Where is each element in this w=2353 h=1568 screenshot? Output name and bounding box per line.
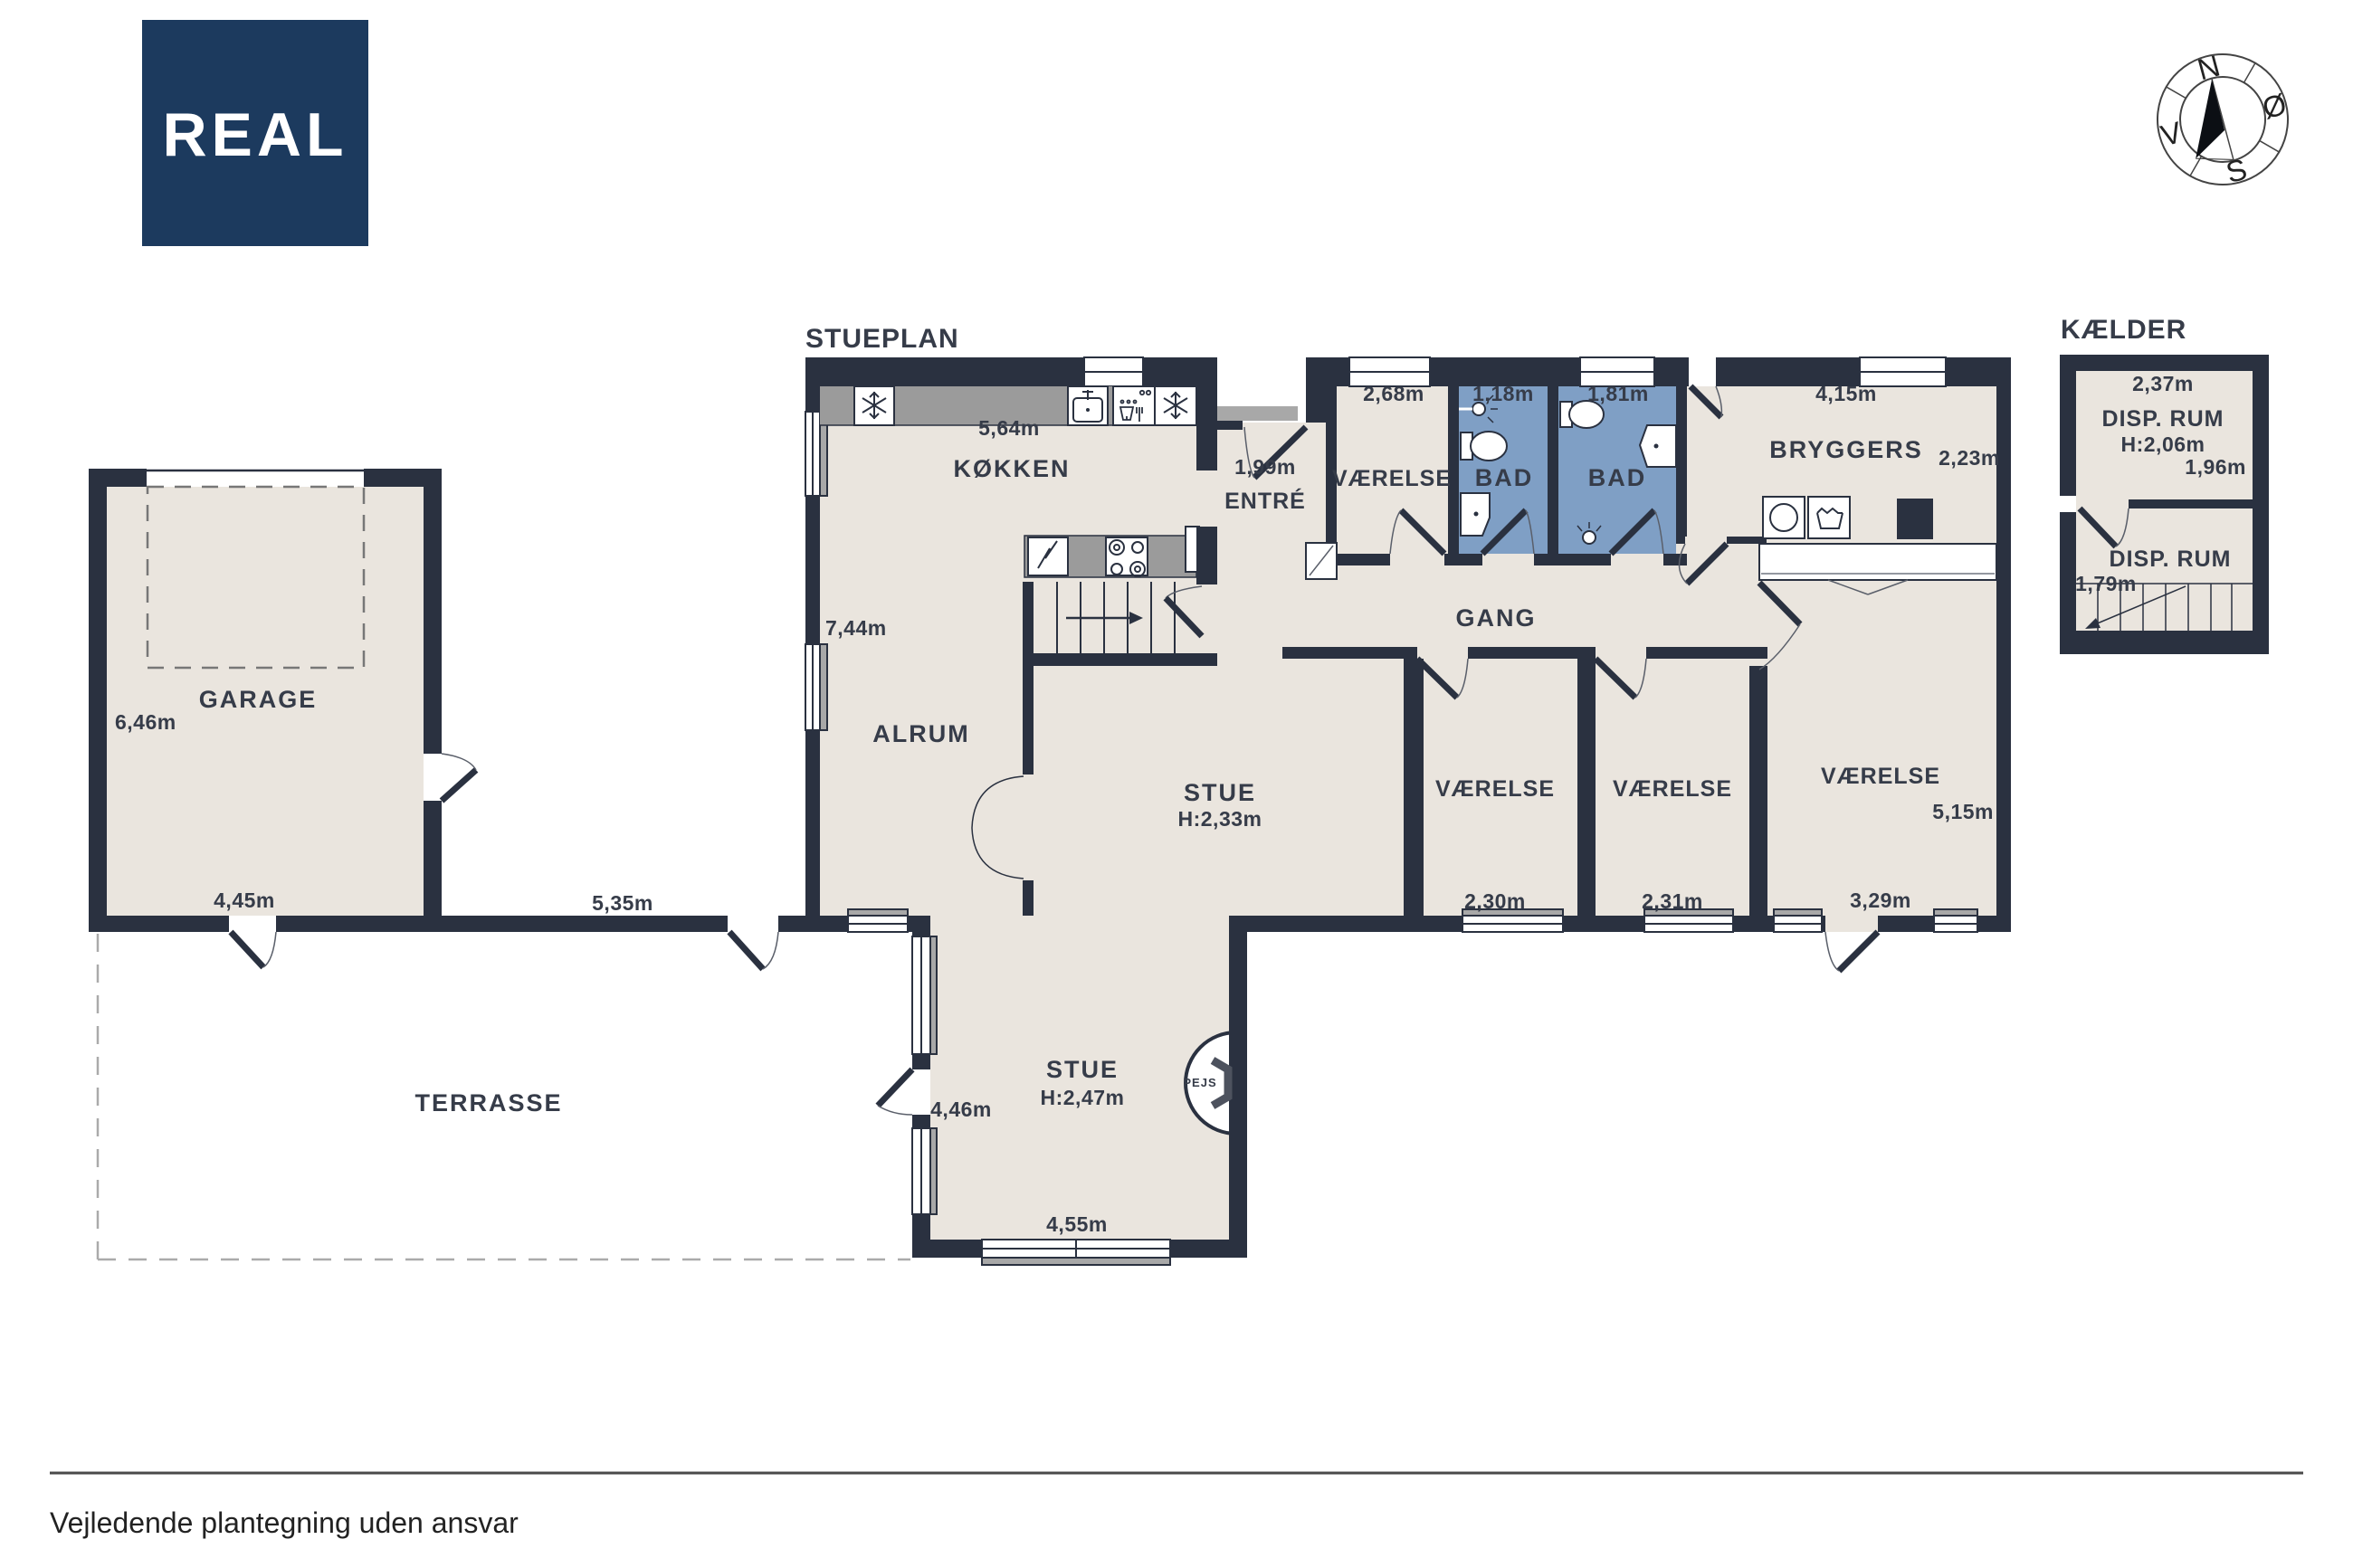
basement-plan-title: KÆLDER <box>2061 315 2186 345</box>
garage-depth: 6,46m <box>115 710 176 734</box>
entre-door-width: 1,99m <box>1234 455 1296 479</box>
stue-syd-label: STUE <box>1046 1056 1119 1083</box>
vaerelse3-label: VÆRELSE <box>1821 764 1940 789</box>
basement-rum1-width: 2,37m <box>2132 372 2194 395</box>
garage-side-door <box>424 754 476 801</box>
bryggers-depth: 2,23m <box>1939 446 2000 470</box>
garage-terrace-door <box>229 916 276 967</box>
connector-width: 5,35m <box>592 891 653 915</box>
garage-label: GARAGE <box>199 686 318 713</box>
vaerelse2-label: VÆRELSE <box>1613 776 1732 802</box>
bad1-label: BAD <box>1475 464 1534 491</box>
bad2-width: 1,81m <box>1587 382 1649 405</box>
koekken-height: 7,44m <box>825 616 887 640</box>
brand-logo: REAL <box>142 20 368 246</box>
basement-plan <box>2060 355 2269 654</box>
brand-logo-text: REAL <box>162 100 348 169</box>
stue-syd-width: 4,55m <box>1046 1212 1108 1236</box>
bad1-width: 1,18m <box>1472 382 1534 405</box>
bad2-label: BAD <box>1588 464 1647 491</box>
vaerelse3-width: 3,29m <box>1850 889 1911 912</box>
vaerelse2-width: 2,31m <box>1642 889 1703 913</box>
basement-rum1-label: DISP. RUM <box>2102 406 2224 432</box>
entre-label: ENTRÉ <box>1224 488 1306 514</box>
koekken-label: KØKKEN <box>953 455 1070 482</box>
floorplan-page: REAL N Ø S V STUEPLAN KÆLDER <box>0 0 2353 1568</box>
basement-rum1-ceiling: H:2,06m <box>2121 432 2205 456</box>
alrum-label: ALRUM <box>872 720 969 747</box>
stue-label: STUE <box>1184 779 1256 806</box>
stue-syd-ceiling: H:2,47m <box>1041 1086 1125 1109</box>
floor-slabs <box>89 357 2011 1258</box>
sink-icon-bad2 <box>1640 425 1676 467</box>
sink-icon-bad1 <box>1461 493 1490 536</box>
vaerelse1-label: VÆRELSE <box>1435 776 1555 802</box>
basement-rum2-width: 1,79m <box>2075 572 2137 595</box>
fireplace-label: PEJS <box>1183 1076 1216 1089</box>
bryggers-width: 4,15m <box>1815 382 1877 405</box>
gang-label: GANG <box>1456 604 1537 632</box>
koekken-width: 5,64m <box>978 416 1040 440</box>
stue-syd-depth: 4,46m <box>930 1098 992 1121</box>
bedroom-exit-door <box>1825 916 1878 971</box>
basement-rum2-label: DISP. RUM <box>2110 546 2232 572</box>
basement-rum1-depth: 1,96m <box>2185 455 2246 479</box>
vaerelse3-depth: 5,15m <box>1932 800 1994 823</box>
toilet-icon-bad1 <box>1461 432 1507 461</box>
vaerelse-nord-label: VÆRELSE <box>1332 466 1452 491</box>
footer-disclaimer: Vejledende plantegning uden ansvar <box>50 1506 519 1539</box>
bryggers-label: BRYGGERS <box>1769 436 1923 463</box>
main-plan-title: STUEPLAN <box>805 324 959 354</box>
vaerelse1-width: 2,30m <box>1464 889 1526 913</box>
stue-ceiling-height: H:2,33m <box>1178 807 1262 831</box>
terrasse-label: TERRASSE <box>414 1089 562 1117</box>
garage-width: 4,45m <box>214 889 275 912</box>
terrace-door-wing <box>878 1069 930 1115</box>
footer: Vejledende plantegning uden ansvar <box>50 1473 2303 1539</box>
connector-door <box>728 916 778 969</box>
compass-rose-icon: N Ø S V <box>2141 34 2303 204</box>
vaerelse-nord-width: 2,68m <box>1363 382 1424 405</box>
